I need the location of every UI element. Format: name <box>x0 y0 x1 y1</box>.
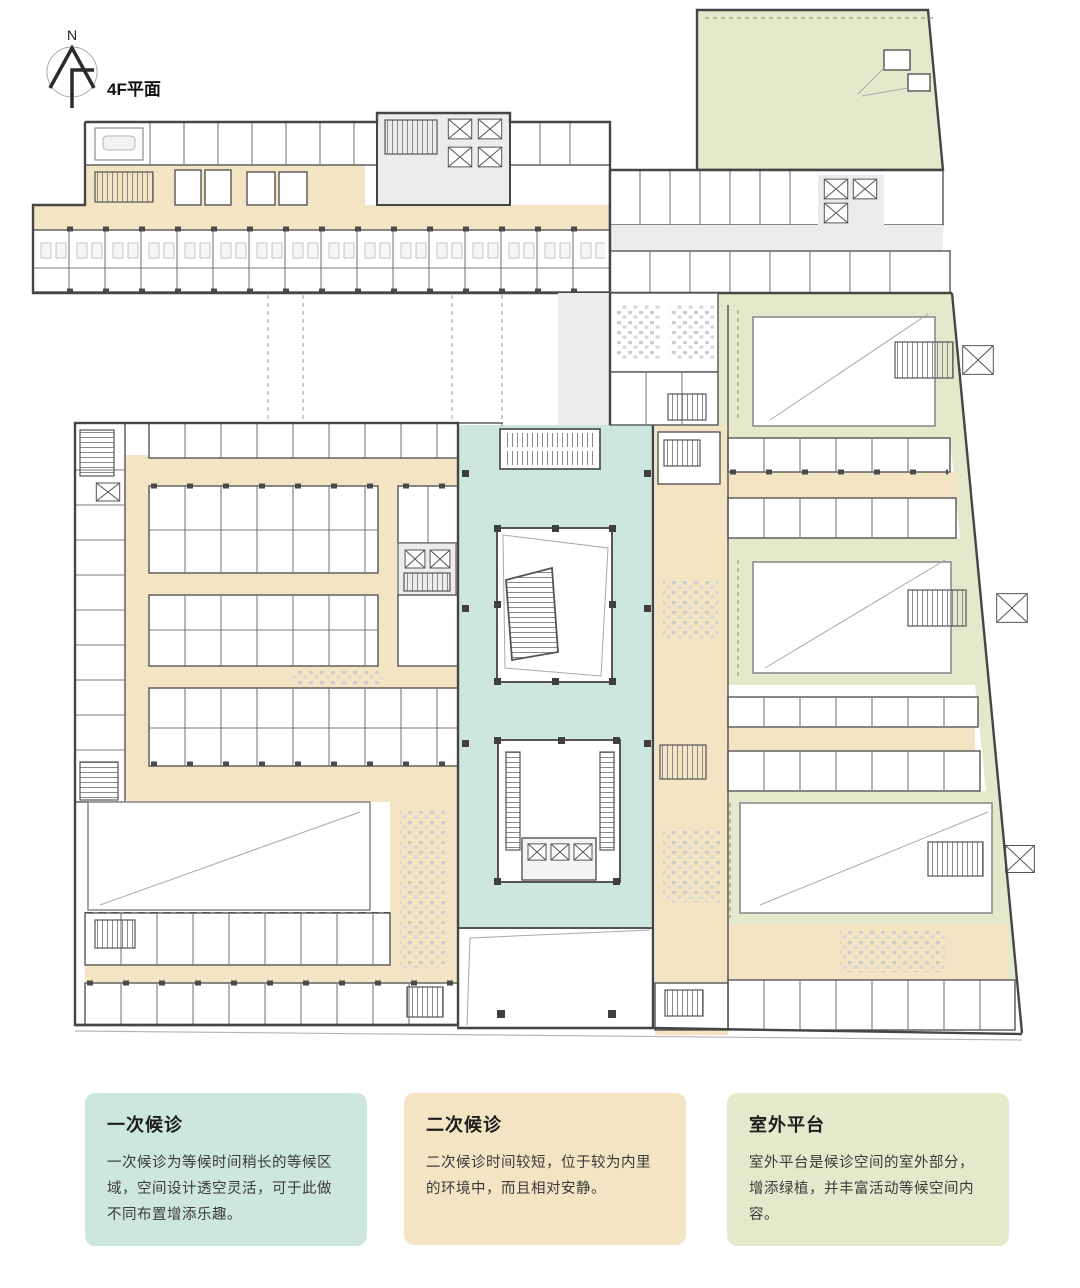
north-label: N <box>67 27 77 43</box>
floor-plan: N 4F平面 <box>0 0 1080 1080</box>
legend: 一次候诊 一次候诊为等候时间稍长的等候区域，空间设计透空灵活，可于此做不同布置增… <box>0 1093 1080 1263</box>
plan-title: 4F平面 <box>107 80 161 99</box>
legend-card-secondary-waiting: 二次候诊 二次候诊时间较短，位于较为内里的环境中，而且相对安静。 <box>404 1093 686 1245</box>
junction-block <box>268 293 718 429</box>
legend-title: 二次候诊 <box>426 1111 664 1137</box>
north-arrow-icon: N <box>47 27 97 108</box>
legend-title: 室外平台 <box>749 1111 987 1137</box>
legend-card-primary-waiting: 一次候诊 一次候诊为等候时间稍长的等候区域，空间设计透空灵活，可于此做不同布置增… <box>85 1093 367 1246</box>
page: N 4F平面 <box>0 0 1080 1288</box>
legend-description: 一次候诊为等候时间稍长的等候区域，空间设计透空灵活，可于此做不同布置增添乐趣。 <box>107 1150 345 1228</box>
block-top-right <box>610 170 952 293</box>
legend-description: 二次候诊时间较短，位于较为内里的环境中，而且相对安静。 <box>426 1150 664 1202</box>
legend-description: 室外平台是候诊空间的室外部分，增添绿植，并丰富活动等候空间内容。 <box>749 1150 987 1228</box>
legend-card-outdoor-terrace: 室外平台 室外平台是候诊空间的室外部分，增添绿植，并丰富活动等候空间内容。 <box>727 1093 1009 1246</box>
legend-title: 一次候诊 <box>107 1111 345 1137</box>
